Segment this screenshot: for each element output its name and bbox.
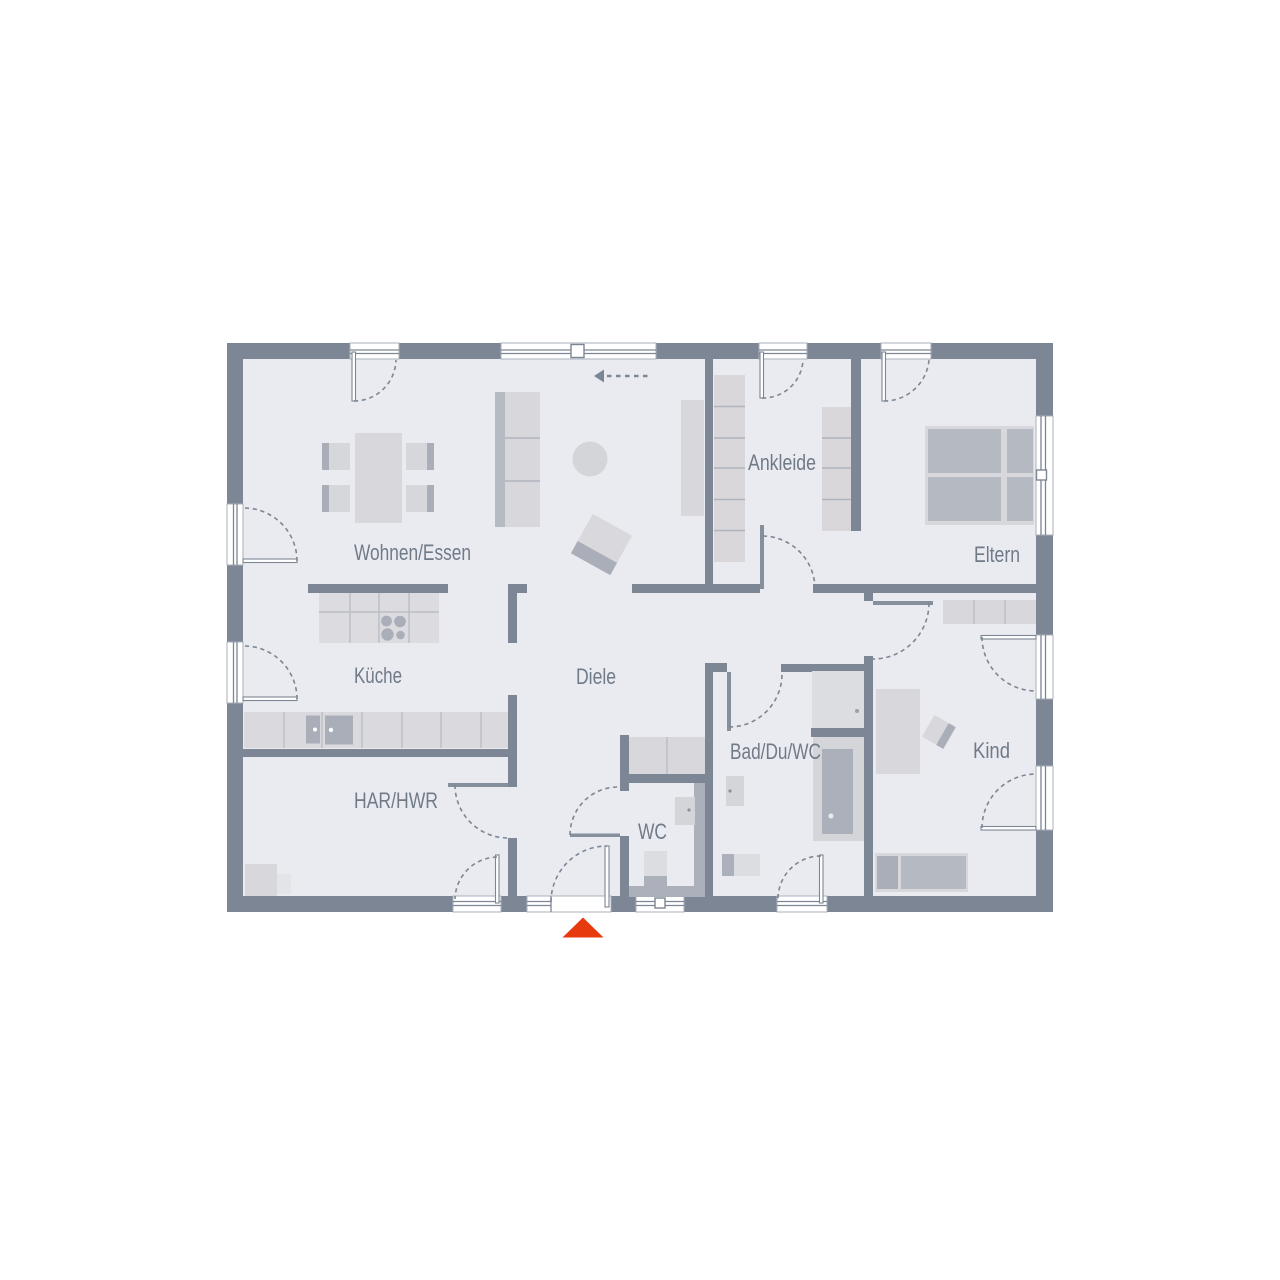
svg-text:Bad/Du/WC: Bad/Du/WC bbox=[730, 739, 821, 764]
svg-text:WC: WC bbox=[638, 819, 667, 844]
svg-text:Kind: Kind bbox=[973, 738, 1010, 763]
svg-text:Eltern: Eltern bbox=[974, 542, 1020, 567]
svg-text:Diele: Diele bbox=[576, 664, 616, 689]
svg-text:HAR/HWR: HAR/HWR bbox=[354, 788, 438, 813]
svg-text:Küche: Küche bbox=[354, 663, 402, 688]
svg-text:Wohnen/Essen: Wohnen/Essen bbox=[354, 540, 471, 565]
svg-text:Ankleide: Ankleide bbox=[748, 450, 816, 475]
